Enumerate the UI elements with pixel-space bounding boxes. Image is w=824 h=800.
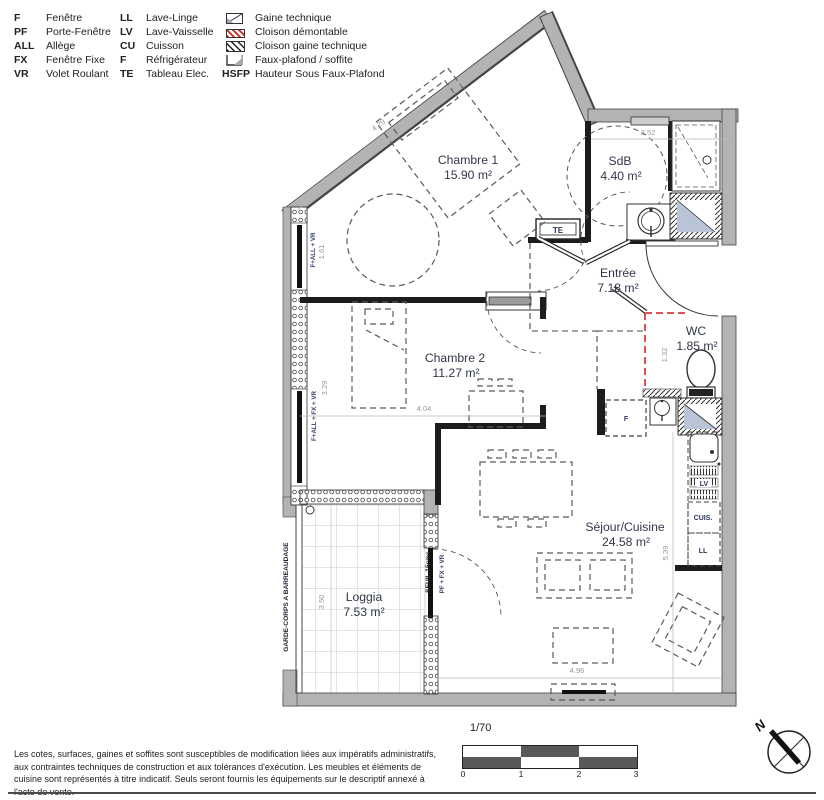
north-label: N [751,717,768,735]
loggia-door-label: PF + FX + VR [439,554,446,593]
seuil-label: SEUIL 15cms [425,551,432,593]
kitchen-sink [690,434,718,462]
room-label-sejour: Séjour/Cuisine [585,520,664,534]
pillow-chambre2 [365,309,393,324]
tableau-electrique: TE [536,219,580,239]
lave-mains [650,398,676,425]
fridge: F [606,400,646,436]
fridge-label: F [624,416,629,423]
north-compass: N [751,717,810,773]
loggia-fixture [306,506,314,514]
window-chambre1 [297,225,302,288]
room-area-entree: 7.18 m² [597,281,638,295]
room-label-entree: Entrée [600,266,636,280]
room-area-sejour: 24.58 m² [602,535,650,549]
room-label-wc: WC [686,324,707,338]
sofa [537,553,632,598]
dim-sejour-width: 4.96 [570,666,585,675]
floor-plan-drawing: TE [0,0,824,800]
bed-chambre2 [352,302,406,408]
scale-tick: 1 [516,769,526,779]
cuis-label: CUIS. [694,515,713,522]
wc-fixtures [687,350,715,403]
te-label: TE [553,226,564,235]
floor-plan-page: F PF ALL FX VR Fenêtre Porte-Fenêtre All… [0,0,824,800]
dim-sdb-width: 2.52 [641,128,656,137]
scale-tick: 2 [574,769,584,779]
room-area-sdb: 4.40 m² [600,169,641,183]
room-area-chambre2: 11.27 m² [432,366,479,380]
room-label-chambre1: Chambre 1 [438,153,499,167]
coffee-table [553,628,613,663]
room-label-loggia: Loggia [346,590,383,604]
ch2-window-label: F+ALL + FX + VR [311,391,318,441]
scale-ratio: 1/70 [470,722,491,734]
lv-label: LV [700,481,709,488]
desk-chambre2 [469,391,523,427]
dim-sejour-height: 5.39 [661,546,670,561]
gaine-technique-sdb [670,193,722,239]
loggia-railing [296,505,302,693]
turning-circle-chambre1 [347,194,439,286]
dim-ch1-diag: 4.29 [370,117,387,133]
dining-table [480,462,572,517]
room-label-sdb: SdB [608,154,631,168]
ll-label: LL [699,548,708,555]
sliding-door-leaf [489,297,531,305]
toilet [687,350,715,388]
dim-loggia-height: 3.50 [317,595,326,610]
dim-ch1-window: 1.61 [317,245,326,260]
scale-tick: 0 [458,769,468,779]
dishwasher: LV [690,466,718,499]
scale-tick: 3 [631,769,641,779]
dim-ch2-width: 4.04 [417,404,432,413]
shower [672,121,720,191]
gaine-technique-wc [678,398,722,435]
entrance-door-leaf [646,241,718,246]
dim-ch2-window: 3.29 [320,381,329,396]
page-divider [8,792,816,794]
room-area-loggia: 7.53 m² [343,605,384,619]
dim-wc-width: 1.32 [660,348,669,363]
room-area-chambre1: 15.90 m² [444,168,492,182]
cloison-gaine-hatch [643,389,681,397]
sdb-high-window [631,117,669,125]
room-area-wc: 1.85 m² [676,339,717,353]
room-label-chambre2: Chambre 2 [425,351,486,365]
kitchen-column: LV CUIS. LL [688,432,721,566]
scale-bar [462,745,638,769]
armchair [652,593,724,667]
left-facade-wall [291,207,307,505]
disclaimer-text: Les cotes, surfaces, gaines et soffites … [14,748,438,798]
window-chambre2 [297,391,302,483]
ch1-window-label: F+ALL + VR [310,232,317,267]
garde-corps-label: GARDE-CORPS A BARREAUDAGE [283,542,290,652]
